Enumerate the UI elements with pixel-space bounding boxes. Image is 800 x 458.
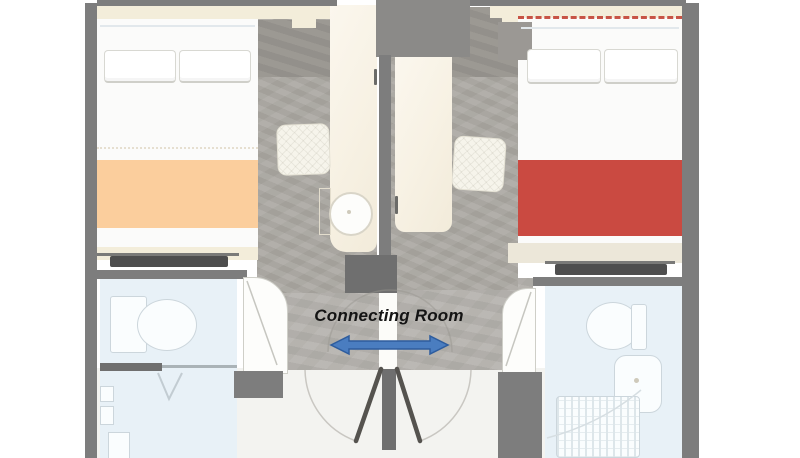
left-entry-door-leaf (356, 369, 381, 441)
plan-lineart-overlay (0, 0, 800, 458)
right-shower-curtain-line (547, 390, 641, 438)
right-bathroom-door-leaf (506, 292, 531, 366)
left-bathroom-door-leaf (247, 281, 277, 365)
floor-plan: Connecting Room (0, 0, 800, 458)
right-entry-swing-arc (420, 370, 471, 441)
connecting-room-label: Connecting Room (289, 306, 489, 328)
left-shower-symbol (158, 373, 182, 399)
left-entry-swing-arc (305, 370, 356, 441)
right-entry-door-leaf (397, 369, 420, 441)
connecting-arrow-icon (331, 336, 448, 354)
